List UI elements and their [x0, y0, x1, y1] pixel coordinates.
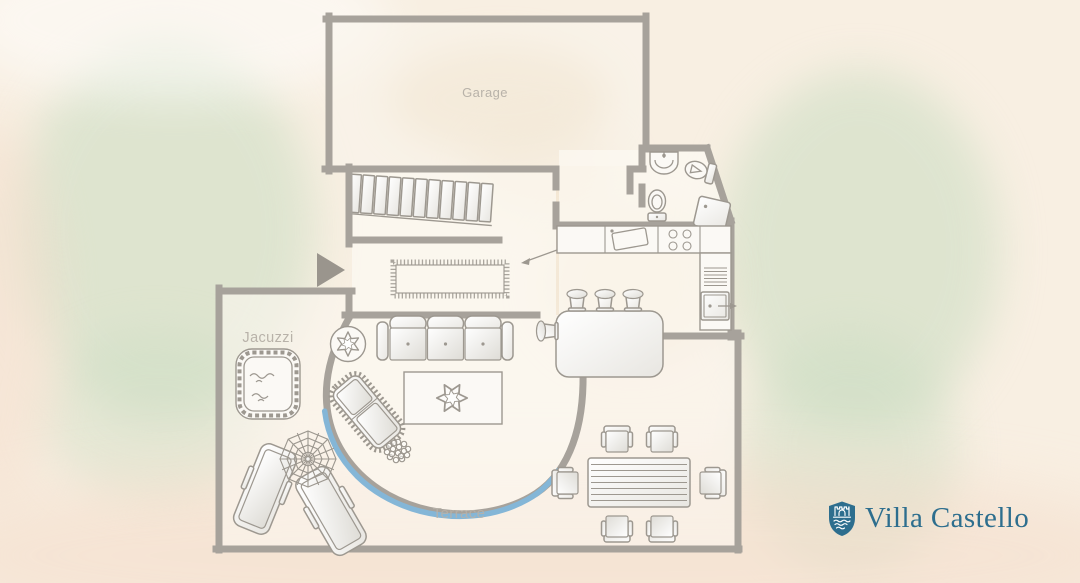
dining-chair [552, 468, 578, 499]
kitchen-counter [557, 226, 731, 253]
dining-chair [647, 516, 678, 542]
dining-chair [647, 426, 678, 452]
jacuzzi-tub [236, 349, 300, 419]
garage-label: Garage [440, 85, 530, 100]
dining-table [588, 458, 690, 507]
dining-chair [602, 516, 633, 542]
entrance-arrow [317, 253, 345, 287]
terrace-label: Terrace [413, 505, 505, 522]
bar-stool [567, 290, 587, 312]
brand-logo: Villa Castello [827, 500, 1029, 537]
potted-plant [331, 327, 366, 362]
sofa [377, 316, 513, 360]
bar-stool [537, 321, 559, 341]
bidet [648, 190, 666, 221]
jacuzzi-label: Jacuzzi [222, 330, 314, 346]
dining-chair [700, 468, 726, 499]
bar-stool [595, 290, 615, 312]
floorplan-drawing [0, 0, 1080, 583]
floorplan-canvas: Garage Jacuzzi Terrace Villa Castello [0, 0, 1080, 583]
bathroom-sink [650, 152, 678, 174]
brand-name: Villa Castello [865, 502, 1029, 535]
bar-stool [623, 290, 643, 312]
villa-castello-shield-icon [827, 500, 857, 537]
parasol [280, 431, 336, 487]
dining-chair [602, 426, 633, 452]
coffee-table [404, 372, 502, 424]
